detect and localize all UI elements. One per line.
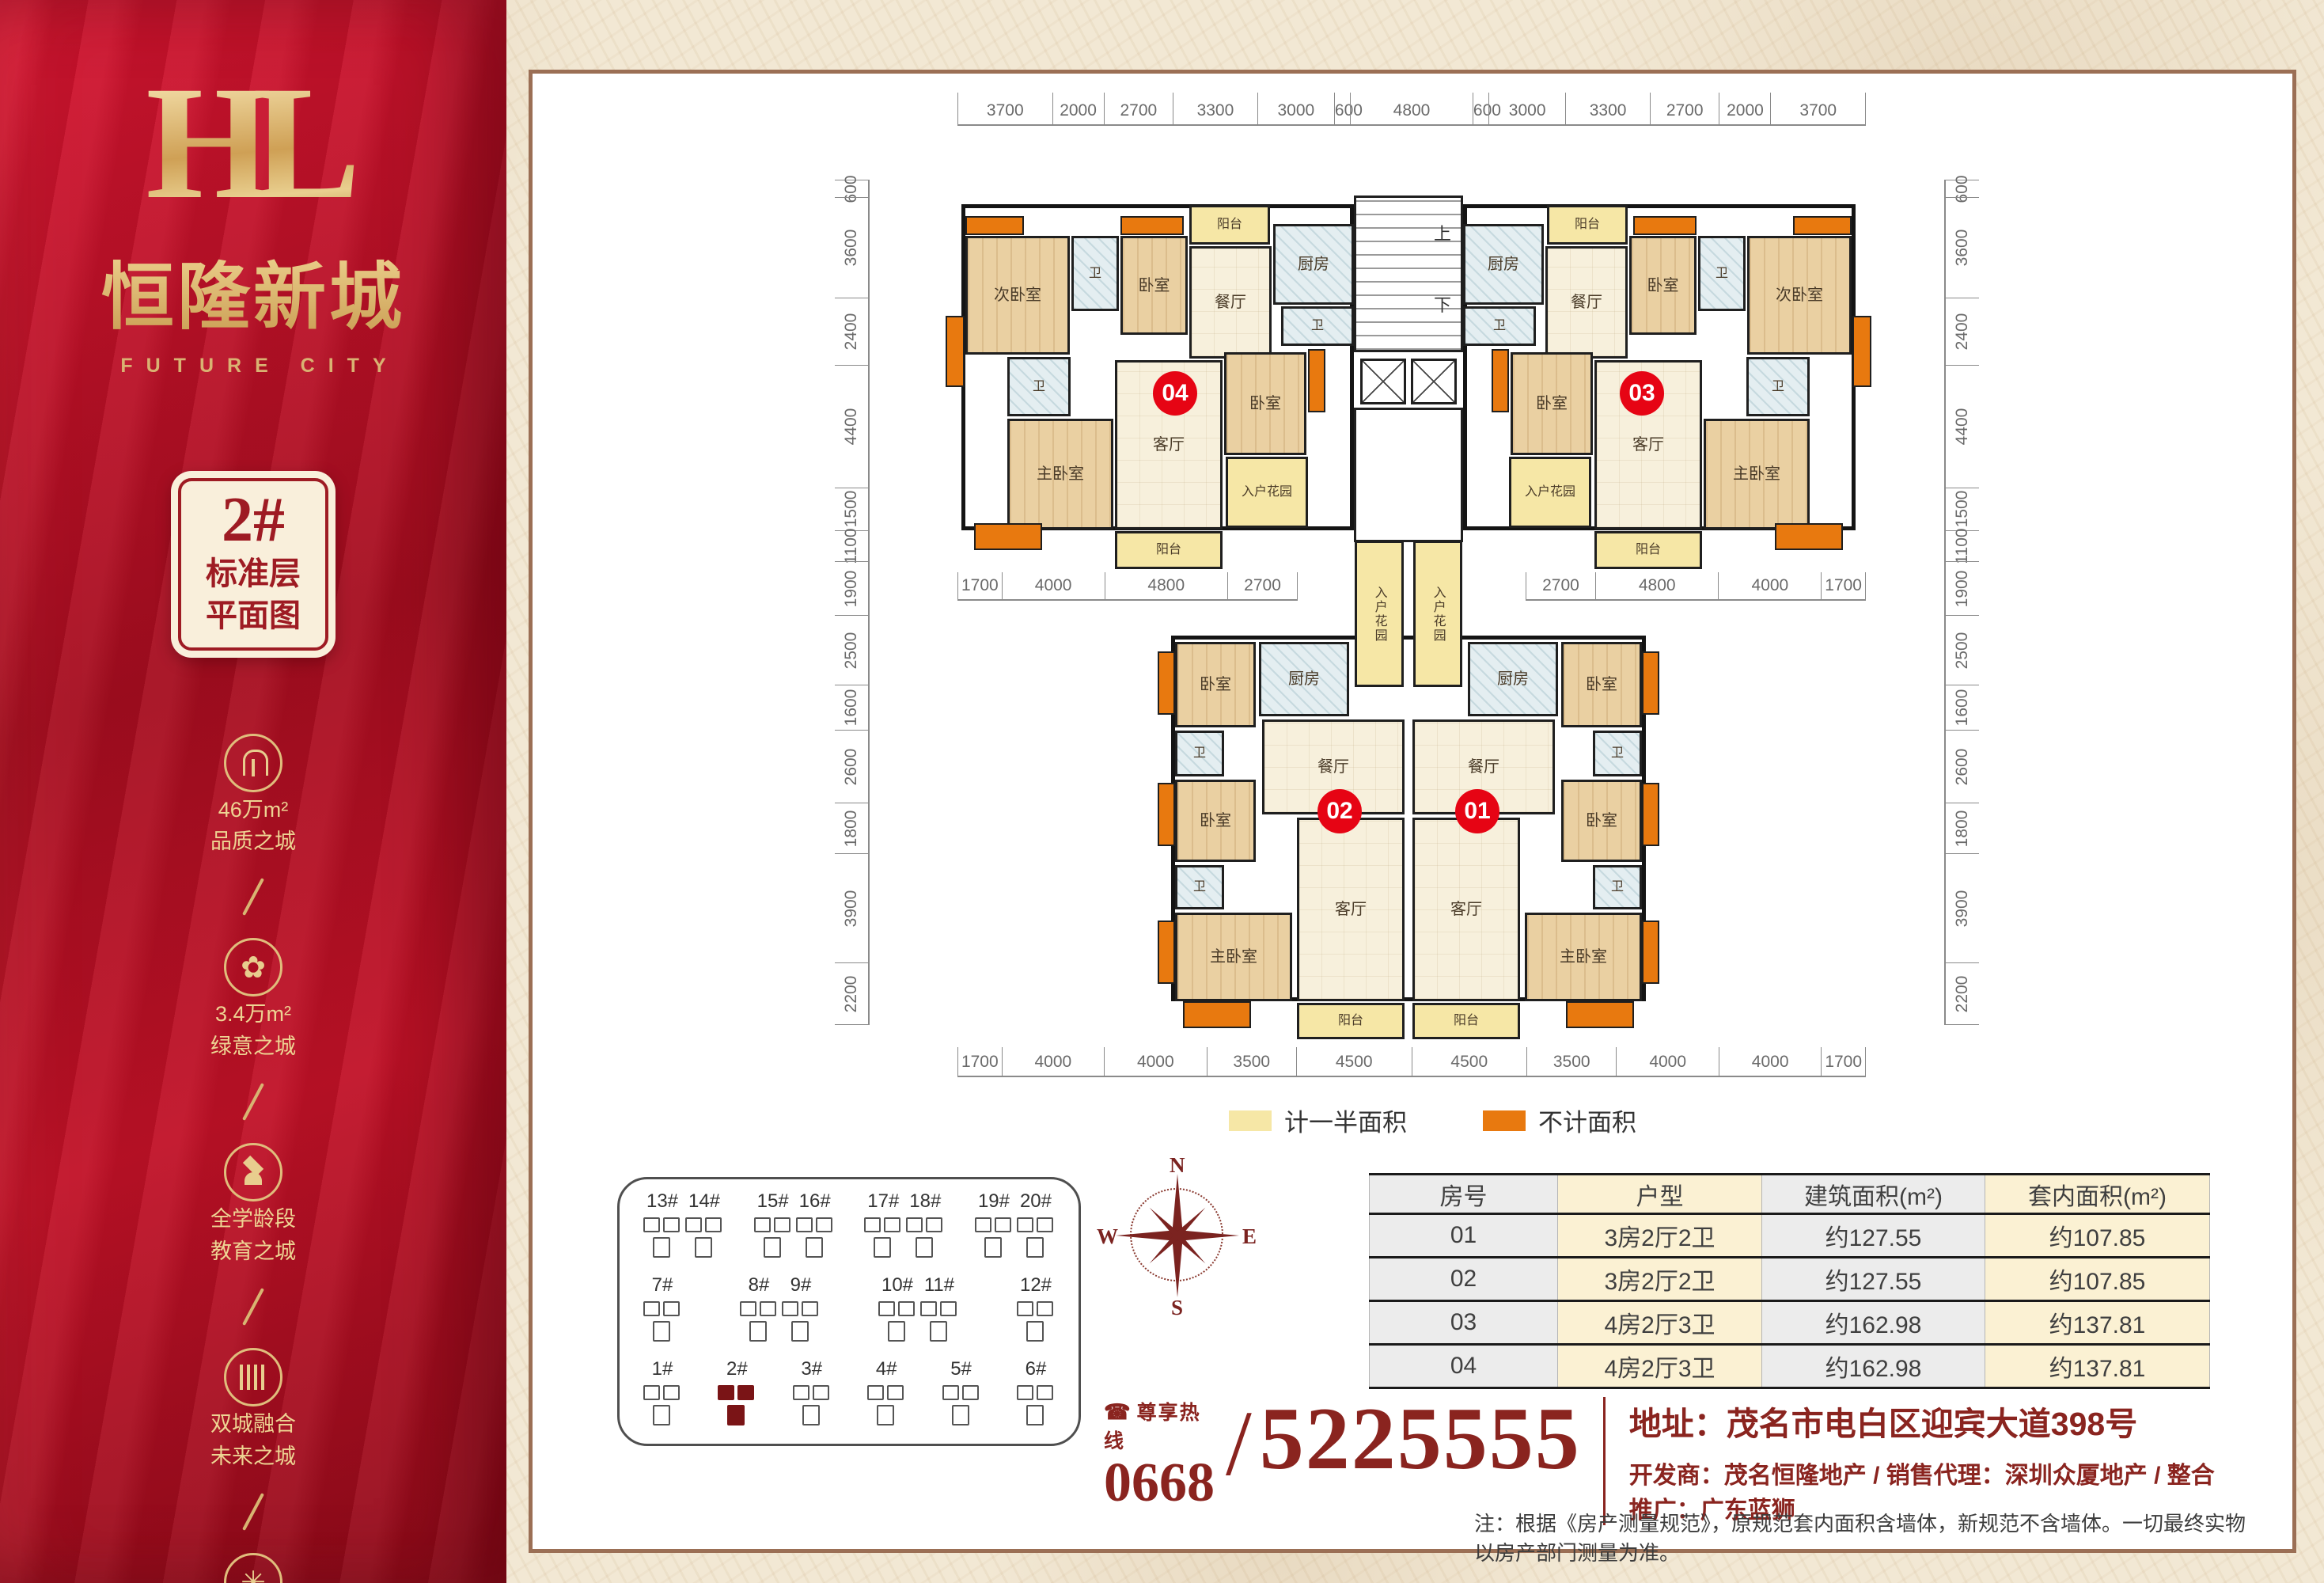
- building-block: [685, 1217, 702, 1232]
- table-cell: 约137.81: [1985, 1301, 2210, 1345]
- building-block: [864, 1217, 881, 1232]
- dim-segment: 3300: [1565, 93, 1650, 126]
- dim-label: 2500: [1953, 632, 1972, 669]
- room-yellow-03: 阳台: [1547, 205, 1628, 245]
- dim-segment: 3900: [835, 853, 870, 962]
- dim-segment: 2600: [835, 730, 870, 803]
- building-cluster: [1017, 1385, 1055, 1428]
- building-item[interactable]: 4#: [867, 1358, 905, 1428]
- pinwheel-icon: ✳: [224, 1553, 282, 1583]
- feature-item: ✿3.4万m²绿意之城: [210, 938, 296, 1061]
- dim-segment: 2000: [1052, 93, 1104, 126]
- floor-badge-line2: 平面图: [171, 595, 336, 637]
- feature-line1: 双城融合: [210, 1410, 296, 1438]
- building-cluster: [796, 1217, 834, 1260]
- dim-segment: 3700: [1770, 93, 1866, 126]
- room-wood-03: 次卧室: [1747, 236, 1852, 355]
- building-group: 12#: [1017, 1274, 1055, 1344]
- building-block: [898, 1301, 915, 1316]
- dim-segment: 1500: [835, 488, 870, 530]
- dim-label: 2600: [842, 749, 861, 786]
- feature-item: 全学龄段教育之城: [210, 1143, 296, 1266]
- compass-rose: N E S W: [1122, 1180, 1233, 1291]
- room-tile-03: 卫: [1698, 236, 1746, 311]
- building-block: [718, 1385, 734, 1400]
- unit-number-badge: 03: [1620, 371, 1664, 416]
- planter-box: [1158, 921, 1175, 984]
- dim-label: 3300: [1566, 101, 1650, 120]
- room-wood-04: 次卧室: [965, 236, 1070, 355]
- planter-box: [1642, 783, 1659, 846]
- room-tile-02: 卫: [1175, 731, 1224, 776]
- building-item[interactable]: 12#: [1017, 1274, 1055, 1344]
- dim-segment: 1500: [1944, 488, 1979, 530]
- building-item[interactable]: 20#: [1017, 1190, 1055, 1260]
- dim-label: 3000: [1489, 101, 1565, 120]
- room-cream-02: 客厅: [1297, 818, 1405, 1001]
- dim-label: 2700: [1651, 101, 1719, 120]
- area-legend: 计一半面积不计面积: [1229, 1103, 1636, 1138]
- building-block: [1017, 1301, 1033, 1316]
- building-item[interactable]: 3#: [793, 1358, 831, 1428]
- building-cluster: [864, 1217, 902, 1260]
- planter-box: [1120, 216, 1184, 235]
- table-header-cell: 套内面积(m²): [1985, 1175, 2210, 1214]
- building-number: 2#: [726, 1358, 748, 1380]
- planter-box: [1308, 349, 1325, 412]
- planter-box: [1775, 523, 1843, 550]
- dim-label: 2000: [1719, 101, 1770, 120]
- hotline-label: ☎尊享热线: [1104, 1397, 1215, 1454]
- room-wood-02: 卧室: [1175, 642, 1256, 727]
- room-tile-01: 卫: [1593, 731, 1642, 776]
- dim-label: 3500: [1207, 1053, 1296, 1072]
- dim-segment: 2200: [1944, 962, 1979, 1025]
- building-block: [653, 1321, 670, 1342]
- building-block: [754, 1217, 771, 1232]
- building-block: [653, 1237, 670, 1258]
- dims-left: 6003600240044001500110019002500160026001…: [835, 180, 870, 1025]
- building-block: [995, 1217, 1011, 1232]
- dim-label: 3900: [1953, 890, 1972, 927]
- dim-segment: 3600: [1944, 197, 1979, 298]
- building-group: 19#20#: [975, 1190, 1055, 1260]
- stair-core: 上 下: [1354, 196, 1463, 352]
- building-block: [749, 1321, 767, 1342]
- phone-icon: ☎: [1104, 1400, 1132, 1424]
- dim-segment: 1700: [1821, 1047, 1866, 1077]
- unit-number-badge: 01: [1455, 789, 1499, 833]
- building-block: [940, 1301, 957, 1316]
- room-wood-04: 主卧室: [1007, 419, 1113, 530]
- building-cluster: [782, 1301, 820, 1344]
- building-item[interactable]: 13#: [643, 1190, 681, 1260]
- flower-icon: ✿: [224, 938, 282, 996]
- building-block: [643, 1217, 660, 1232]
- building-item[interactable]: 10#: [878, 1274, 916, 1344]
- planter-box: [1642, 921, 1659, 984]
- site-map: 13#14#15#16#17#18#19#20#7#8#9#10#11#12#1…: [617, 1177, 1081, 1446]
- feature-line1: 3.4万m²: [215, 1000, 291, 1028]
- feature-line2: 品质之城: [210, 827, 296, 856]
- stair-up-label: 上: [1434, 220, 1451, 245]
- building-cluster: [906, 1217, 944, 1260]
- planter-box: [1642, 651, 1659, 715]
- feature-line2: 教育之城: [210, 1237, 296, 1266]
- dim-label: 4500: [1297, 1053, 1412, 1072]
- planter-box: [1158, 783, 1175, 846]
- building-cluster: [975, 1217, 1013, 1260]
- dim-segment: 1900: [1944, 561, 1979, 615]
- table-header-cell: 建筑面积(m²): [1762, 1175, 1985, 1214]
- dim-segment: 1100: [1944, 530, 1979, 562]
- dim-segment: 4400: [835, 365, 870, 488]
- dim-segment: 1100: [835, 530, 870, 562]
- dim-segment: 4000: [1616, 1047, 1718, 1077]
- feature-item: 46万m²品质之城: [210, 734, 296, 856]
- room-wood-01: 卧室: [1561, 642, 1642, 727]
- building-number: 6#: [1026, 1358, 1047, 1380]
- dim-label: 1700: [1822, 1053, 1865, 1072]
- building-group: 5#: [942, 1358, 980, 1428]
- building-block: [1026, 1237, 1044, 1258]
- dim-label: 3900: [842, 890, 861, 927]
- building-item[interactable]: 6#: [1017, 1358, 1055, 1428]
- room-yellow-01: 入户花园: [1413, 541, 1462, 687]
- dim-label: 3700: [958, 101, 1052, 120]
- dim-segment: 1900: [835, 561, 870, 615]
- table-cell: 03: [1370, 1301, 1558, 1345]
- table-cell: 约127.55: [1762, 1214, 1985, 1258]
- dim-label: 1700: [958, 1053, 1002, 1072]
- dim-segment: 2500: [1944, 615, 1979, 685]
- building-block: [813, 1385, 829, 1400]
- site-map-row: 13#14#15#16#17#18#19#20#: [643, 1190, 1055, 1260]
- building-cluster: [867, 1385, 905, 1428]
- dim-segment: 4500: [1296, 1047, 1412, 1077]
- dim-label: 3000: [1258, 101, 1334, 120]
- floor-plan: 上 下 次卧室次卧室卫卫卧室卧室阳台阳台餐厅餐厅厨房厨房卫卫卫卫主卧室主卧室客厅…: [946, 184, 1871, 1039]
- building-item[interactable]: 15#: [754, 1190, 792, 1260]
- table-cell: 约107.85: [1985, 1214, 2210, 1258]
- room-wood-04: 卧室: [1224, 352, 1306, 455]
- building-number: 12#: [1020, 1274, 1052, 1296]
- feature-separator: [242, 1493, 264, 1531]
- building-block: [926, 1217, 942, 1232]
- dim-label: 4800: [1351, 101, 1473, 120]
- dim-label: 2500: [842, 632, 861, 669]
- hotline-slash: /: [1226, 1397, 1252, 1490]
- room-cream-03: 餐厅: [1545, 246, 1628, 359]
- dim-label: 1500: [1953, 491, 1972, 528]
- planter-box: [1566, 1001, 1634, 1028]
- building-number: 19#: [978, 1190, 1010, 1213]
- building-block: [906, 1217, 923, 1232]
- dim-label: 3500: [1527, 1053, 1616, 1072]
- planter-box: [1633, 216, 1697, 235]
- dim-label: 3600: [1953, 230, 1972, 267]
- room-yellow-04: 阳台: [1115, 531, 1223, 569]
- building-number: 18#: [909, 1190, 941, 1213]
- building-cluster: [643, 1217, 681, 1260]
- building-number: 16#: [799, 1190, 831, 1213]
- building-block: [975, 1217, 991, 1232]
- building-block: [887, 1385, 904, 1400]
- hotline: ☎尊享热线 0668: [1104, 1397, 1215, 1511]
- dim-label: 3300: [1173, 101, 1257, 120]
- building-item[interactable]: 5#: [942, 1358, 980, 1428]
- brand-name-en: FUTURE CITY: [107, 355, 399, 378]
- dim-segment: 4000: [1719, 1047, 1821, 1077]
- main-panel: 3700200027003300300060048006003000330027…: [529, 70, 2296, 1553]
- compass-e-label: E: [1242, 1224, 1257, 1249]
- building-cluster: [1017, 1301, 1055, 1344]
- compass-w-label: W: [1097, 1224, 1118, 1249]
- dim-label: 1800: [842, 810, 861, 848]
- building-item[interactable]: 9#: [782, 1274, 820, 1344]
- sidebar-content: HL 恒隆新城 FUTURE CITY 2# 标准层 平面图 46万m²品质之城…: [0, 0, 506, 1583]
- room-wood-04: 卧室: [1120, 236, 1188, 335]
- building-block: [653, 1405, 670, 1425]
- feature-line1: 46万m²: [218, 795, 289, 824]
- building-block: [802, 1405, 820, 1425]
- legend-label: 不计面积: [1538, 1103, 1636, 1138]
- building-item[interactable]: 7#: [643, 1274, 681, 1344]
- table-header-cell: 房号: [1370, 1175, 1558, 1214]
- building-number: 20#: [1020, 1190, 1052, 1213]
- building-block: [942, 1385, 959, 1400]
- building-number: 3#: [801, 1358, 822, 1380]
- core-lobby: [1354, 408, 1463, 542]
- room-tile-03: 卫: [1463, 306, 1536, 346]
- table-cell: 3房2厅2卫: [1558, 1258, 1762, 1301]
- building-item[interactable]: 8#: [740, 1274, 778, 1344]
- feature-item: 双城融合未来之城: [210, 1348, 296, 1471]
- table-cell: 约107.85: [1985, 1258, 2210, 1301]
- feature-separator: [242, 879, 264, 917]
- feature-list: 46万m²品质之城✿3.4万m²绿意之城全学龄段教育之城双城融合未来之城✳奢适户…: [210, 734, 296, 1583]
- table-row: 044房2厅3卫约162.98约137.81: [1370, 1345, 2210, 1388]
- site-map-row: 1#2#3#4#5#6#: [643, 1358, 1055, 1428]
- building-block: [695, 1237, 712, 1258]
- city-towers-icon: [240, 1365, 267, 1390]
- room-cream-04: 餐厅: [1189, 246, 1272, 359]
- dim-label: 4500: [1412, 1053, 1527, 1072]
- dim-segment: 1600: [1944, 685, 1979, 730]
- dim-segment: 4000: [1104, 1047, 1206, 1077]
- address-line: 地址：茂名市电白区迎宾大道398号: [1629, 1397, 2227, 1444]
- dim-label: 4000: [1719, 1053, 1821, 1072]
- building-number: 4#: [876, 1358, 897, 1380]
- dim-segment: 1800: [835, 803, 870, 853]
- dim-label: 1100: [1953, 528, 1972, 564]
- table-cell: 约162.98: [1762, 1345, 1985, 1388]
- hotline-number[interactable]: 5225555: [1260, 1397, 1581, 1481]
- building-number: 14#: [688, 1190, 720, 1213]
- dim-segment: 4800: [1350, 93, 1473, 126]
- room-tile-02: 卫: [1175, 865, 1224, 909]
- building-block: [793, 1385, 809, 1400]
- dim-segment: 2400: [1944, 298, 1979, 365]
- arch-gate-icon: [241, 750, 265, 776]
- building-group: 10#11#: [878, 1274, 958, 1344]
- stair-down-label: 下: [1434, 291, 1451, 317]
- planter-box: [974, 523, 1042, 550]
- dim-segment: 1700: [957, 1047, 1002, 1077]
- room-wood-03: 卧室: [1511, 352, 1593, 455]
- dim-segment: 3500: [1207, 1047, 1296, 1077]
- building-block: [1017, 1217, 1033, 1232]
- dims-right: 6003600240044001500110019002500160026001…: [1944, 180, 1979, 1025]
- room-yellow-04: 阳台: [1189, 205, 1270, 245]
- table-cell: 02: [1370, 1258, 1558, 1301]
- room-yellow-03: 入户花园: [1509, 457, 1591, 528]
- building-block: [802, 1301, 818, 1316]
- building-block: [663, 1217, 680, 1232]
- dim-segment: 3900: [1944, 853, 1979, 962]
- planter-box: [1183, 1001, 1251, 1028]
- building-item[interactable]: 14#: [685, 1190, 723, 1260]
- compass-s-label: S: [1171, 1296, 1183, 1320]
- building-block: [1037, 1301, 1053, 1316]
- dim-label: 600: [1335, 101, 1350, 120]
- dim-label: 3600: [842, 230, 861, 267]
- dim-segment: 3000: [1488, 93, 1565, 126]
- table-cell: 约127.55: [1762, 1258, 1985, 1301]
- room-yellow-01: 阳台: [1412, 1003, 1520, 1039]
- dim-segment: 2700: [1104, 93, 1173, 126]
- room-yellow-03: 阳台: [1594, 531, 1702, 569]
- room-tile-03: 厨房: [1463, 224, 1544, 305]
- building-group: 17#18#: [864, 1190, 944, 1260]
- building-block: [878, 1301, 895, 1316]
- poster-page: HL 恒隆新城 FUTURE CITY 2# 标准层 平面图 46万m²品质之城…: [0, 0, 2324, 1583]
- brand-name-cn: 恒隆新城: [101, 238, 405, 344]
- planter-box: [1793, 216, 1852, 235]
- table-header-cell: 户型: [1558, 1175, 1762, 1214]
- building-group: 7#: [643, 1274, 681, 1344]
- building-group: 4#: [867, 1358, 905, 1428]
- building-item[interactable]: 2#: [718, 1358, 756, 1428]
- building-number: 17#: [867, 1190, 899, 1213]
- building-number: 15#: [757, 1190, 789, 1213]
- building-cluster: [685, 1217, 723, 1260]
- building-block: [884, 1217, 900, 1232]
- building-cluster: [643, 1301, 681, 1344]
- address-block: 地址：茂名市电白区迎宾大道398号 开发商：茂名恒隆地产 / 销售代理：深圳众厦…: [1603, 1397, 2227, 1525]
- room-wood-01: 卧室: [1561, 780, 1642, 862]
- dim-segment: 600: [835, 180, 870, 197]
- building-group: 6#: [1017, 1358, 1055, 1428]
- dims-bottom: 1700400040003500450045003500400040001700: [957, 1047, 1866, 1077]
- room-tile-02: 厨房: [1259, 642, 1349, 716]
- room-yellow-04: 入户花园: [1226, 457, 1308, 528]
- feature-separator: [242, 1083, 264, 1121]
- building-number: 11#: [924, 1274, 954, 1296]
- dim-segment: 3700: [957, 93, 1052, 126]
- dim-label: 2200: [1953, 975, 1972, 1012]
- sidebar: HL 恒隆新城 FUTURE CITY 2# 标准层 平面图 46万m²品质之城…: [0, 0, 506, 1583]
- floor-badge: 2# 标准层 平面图: [171, 471, 336, 658]
- room-tile-04: 卫: [1281, 306, 1354, 346]
- dim-label: 4000: [1105, 1053, 1206, 1072]
- contact-block: ☎尊享热线 0668 / 5225555 地址：茂名市电白区迎宾大道398号 开…: [1104, 1397, 2227, 1525]
- dim-segment: 600: [1944, 180, 1979, 197]
- building-number: 5#: [950, 1358, 972, 1380]
- dim-segment: 3000: [1257, 93, 1334, 126]
- building-block: [1037, 1217, 1053, 1232]
- room-tile-04: 卫: [1007, 357, 1071, 416]
- dim-label: 4000: [1617, 1053, 1718, 1072]
- feature-line2: 未来之城: [210, 1442, 296, 1471]
- building-cluster: [878, 1301, 916, 1344]
- table-cell: 3房2厅2卫: [1558, 1214, 1762, 1258]
- feature-line1: 全学龄段: [210, 1205, 296, 1233]
- dim-label: 1600: [1953, 689, 1972, 727]
- room-tile-04: 卫: [1071, 236, 1119, 311]
- building-cluster: [643, 1385, 681, 1428]
- building-block: [663, 1385, 680, 1400]
- building-block: [877, 1405, 894, 1425]
- table-row: 023房2厅2卫约127.55约107.85: [1370, 1258, 2210, 1301]
- building-block: [806, 1237, 823, 1258]
- building-cluster: [1017, 1217, 1055, 1260]
- building-group: 3#: [793, 1358, 831, 1428]
- elevator-shaft: [1360, 359, 1406, 404]
- building-item[interactable]: 1#: [643, 1358, 681, 1428]
- building-cluster: [942, 1385, 980, 1428]
- dim-label: 2400: [842, 313, 861, 351]
- building-item[interactable]: 11#: [920, 1274, 958, 1344]
- planter-box: [1158, 651, 1175, 715]
- room-yellow-02: 入户花园: [1355, 541, 1404, 687]
- planter-box: [946, 316, 965, 387]
- room-wood-02: 主卧室: [1175, 913, 1292, 1001]
- room-wood-01: 主卧室: [1525, 913, 1642, 1001]
- building-item[interactable]: 19#: [975, 1190, 1013, 1260]
- building-item[interactable]: 16#: [796, 1190, 834, 1260]
- building-number: 1#: [652, 1358, 673, 1380]
- dim-segment: 3600: [835, 197, 870, 298]
- legend-label: 计一半面积: [1284, 1103, 1407, 1138]
- dim-label: 1600: [842, 689, 861, 727]
- building-block: [643, 1301, 660, 1316]
- dim-segment: 3500: [1526, 1047, 1616, 1077]
- dim-segment: 4000: [1002, 1047, 1104, 1077]
- floor-badge-number: 2#: [171, 487, 336, 553]
- compass-n-label: N: [1170, 1153, 1185, 1178]
- table-row: 013房2厅2卫约127.55约107.85: [1370, 1214, 2210, 1258]
- dim-segment: 2600: [1944, 730, 1979, 803]
- dim-label: 4400: [842, 408, 861, 446]
- dim-label: 2000: [1053, 101, 1104, 120]
- building-item[interactable]: 18#: [906, 1190, 944, 1260]
- feature-line2: 绿意之城: [210, 1032, 296, 1061]
- table-row: 034房2厅3卫约162.98约137.81: [1370, 1301, 2210, 1345]
- building-block: [1017, 1385, 1033, 1400]
- dim-segment: 4400: [1944, 365, 1979, 488]
- building-group: 2#: [718, 1358, 756, 1428]
- building-cluster: [718, 1385, 756, 1428]
- planter-box: [965, 216, 1024, 235]
- building-block: [705, 1217, 722, 1232]
- building-item[interactable]: 17#: [864, 1190, 902, 1260]
- table-cell: 约137.81: [1985, 1345, 2210, 1388]
- dim-label: 2600: [1953, 749, 1972, 786]
- building-block: [737, 1385, 754, 1400]
- building-block: [867, 1385, 884, 1400]
- hotline-area-code: 0668: [1104, 1456, 1215, 1511]
